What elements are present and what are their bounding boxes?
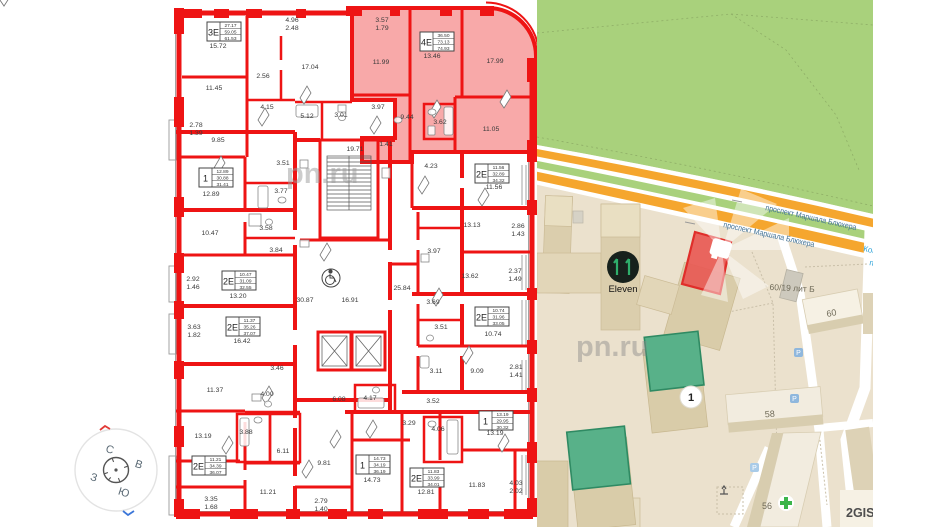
- svg-text:13.19: 13.19: [486, 430, 503, 437]
- svg-text:pn.ru: pn.ru: [576, 331, 649, 363]
- svg-text:С: С: [104, 443, 115, 457]
- svg-text:3.84: 3.84: [269, 247, 282, 254]
- svg-text:11.56: 11.56: [493, 165, 505, 171]
- svg-text:11.37: 11.37: [244, 318, 256, 324]
- svg-text:73.13: 73.13: [437, 40, 449, 46]
- svg-text:2Е: 2Е: [193, 462, 204, 472]
- svg-text:3.63: 3.63: [187, 324, 200, 331]
- svg-text:P: P: [796, 350, 801, 357]
- svg-text:11.83: 11.83: [469, 482, 486, 489]
- svg-text:30.88: 30.88: [216, 176, 228, 182]
- svg-text:2Е: 2Е: [223, 277, 234, 287]
- svg-text:1.43: 1.43: [511, 231, 524, 238]
- svg-text:3.97: 3.97: [371, 104, 384, 111]
- svg-text:1: 1: [360, 461, 365, 471]
- svg-text:11.05: 11.05: [483, 126, 500, 133]
- svg-text:4.17: 4.17: [363, 395, 376, 402]
- svg-text:2.86: 2.86: [511, 223, 524, 230]
- svg-text:19.71: 19.71: [346, 146, 363, 153]
- svg-text:1.40: 1.40: [314, 506, 327, 513]
- svg-text:15.72: 15.72: [209, 43, 226, 50]
- svg-text:6.08: 6.08: [332, 396, 345, 403]
- svg-text:В: В: [133, 458, 144, 472]
- svg-text:13.13: 13.13: [463, 222, 480, 229]
- svg-text:3.88: 3.88: [239, 429, 252, 436]
- svg-text:11.37: 11.37: [207, 387, 224, 394]
- svg-text:59.05: 59.05: [224, 30, 236, 36]
- svg-text:16.42: 16.42: [233, 338, 250, 345]
- svg-text:17.04: 17.04: [301, 64, 318, 71]
- svg-text:13.62: 13.62: [461, 273, 478, 280]
- svg-text:2Е: 2Е: [227, 323, 238, 333]
- svg-text:3.52: 3.52: [426, 398, 439, 405]
- svg-text:12.81: 12.81: [417, 489, 434, 496]
- svg-text:34.19: 34.19: [373, 463, 385, 469]
- svg-text:11.21: 11.21: [260, 489, 277, 496]
- svg-text:P: P: [752, 465, 757, 472]
- svg-text:3.62: 3.62: [433, 119, 446, 126]
- svg-text:2Е: 2Е: [411, 474, 422, 484]
- svg-text:1.41: 1.41: [509, 372, 522, 379]
- svg-text:10.47: 10.47: [239, 272, 251, 278]
- svg-text:27.17: 27.17: [224, 23, 236, 29]
- svg-text:3.29: 3.29: [402, 420, 415, 427]
- svg-text:2.78: 2.78: [189, 122, 202, 129]
- svg-text:1.39: 1.39: [189, 130, 202, 137]
- svg-text:30.32: 30.32: [496, 425, 508, 431]
- svg-text:3.51: 3.51: [434, 324, 447, 331]
- svg-text:1: 1: [203, 174, 208, 184]
- svg-text:2Е: 2Е: [476, 313, 487, 323]
- svg-text:4.15: 4.15: [260, 104, 273, 111]
- svg-text:3.57: 3.57: [375, 17, 388, 24]
- svg-text:6.11: 6.11: [277, 448, 290, 455]
- svg-text:35.26: 35.26: [243, 325, 255, 331]
- svg-text:34.32: 34.32: [492, 178, 504, 184]
- svg-text:3.35: 3.35: [204, 496, 217, 503]
- svg-text:17.99: 17.99: [486, 58, 503, 65]
- svg-text:P: P: [792, 396, 797, 403]
- svg-text:56: 56: [762, 501, 772, 511]
- svg-text:13.20: 13.20: [229, 293, 246, 300]
- svg-text:61.53: 61.53: [224, 36, 236, 42]
- svg-text:9.44: 9.44: [400, 114, 413, 121]
- svg-text:16.91: 16.91: [341, 297, 358, 304]
- svg-text:2.02: 2.02: [509, 488, 522, 495]
- svg-text:10.74: 10.74: [492, 308, 504, 314]
- svg-text:5.12: 5.12: [300, 113, 313, 120]
- svg-text:3.11: 3.11: [430, 368, 443, 375]
- svg-text:2GIS: 2GIS: [846, 506, 873, 520]
- svg-text:9.09: 9.09: [470, 368, 483, 375]
- svg-text:2.56: 2.56: [256, 73, 269, 80]
- svg-text:3.97: 3.97: [427, 248, 440, 255]
- svg-text:25.84: 25.84: [393, 285, 410, 292]
- svg-text:10.47: 10.47: [201, 230, 218, 237]
- svg-text:13.19: 13.19: [194, 433, 211, 440]
- svg-text:4.96: 4.96: [285, 17, 298, 24]
- svg-text:3.77: 3.77: [274, 188, 287, 195]
- svg-text:34.01: 34.01: [427, 482, 439, 488]
- svg-text:4.06: 4.06: [431, 426, 444, 433]
- svg-text:36.50: 36.50: [437, 33, 449, 39]
- svg-text:60: 60: [826, 307, 838, 319]
- svg-text:1.49: 1.49: [508, 276, 521, 283]
- svg-text:2.79: 2.79: [314, 498, 327, 505]
- svg-text:1.41: 1.41: [379, 141, 392, 148]
- svg-text:34.39: 34.39: [209, 464, 221, 470]
- svg-text:31.09: 31.09: [239, 279, 251, 285]
- svg-text:9.85: 9.85: [211, 137, 224, 144]
- svg-text:29.95: 29.95: [496, 419, 508, 425]
- svg-text:2.92: 2.92: [186, 276, 199, 283]
- svg-text:37.07: 37.07: [243, 331, 255, 337]
- svg-text:58: 58: [764, 409, 775, 420]
- svg-text:1.82: 1.82: [187, 332, 200, 339]
- svg-text:pn.ru: pn.ru: [286, 158, 359, 190]
- svg-text:Ю: Ю: [117, 486, 131, 501]
- svg-text:1: 1: [688, 392, 694, 404]
- svg-text:9.81: 9.81: [317, 460, 330, 467]
- svg-text:1.68: 1.68: [204, 504, 217, 511]
- svg-text:13.46: 13.46: [423, 53, 440, 60]
- svg-text:11.83: 11.83: [428, 469, 440, 475]
- svg-text:3.51: 3.51: [276, 160, 289, 167]
- svg-text:36.07: 36.07: [209, 470, 221, 476]
- svg-text:33.99: 33.99: [427, 476, 439, 482]
- svg-text:3.58: 3.58: [259, 225, 272, 232]
- svg-text:13.19: 13.19: [496, 412, 508, 418]
- svg-text:33.05: 33.05: [492, 321, 504, 327]
- svg-text:2Е: 2Е: [476, 170, 487, 180]
- svg-text:4.03: 4.03: [509, 480, 522, 487]
- svg-text:14.73: 14.73: [363, 477, 380, 484]
- svg-text:11.21: 11.21: [210, 457, 222, 463]
- svg-text:3.69: 3.69: [426, 299, 439, 306]
- svg-text:10.74: 10.74: [484, 331, 501, 338]
- svg-text:12.89: 12.89: [202, 191, 219, 198]
- svg-text:2.81: 2.81: [509, 364, 522, 371]
- svg-text:32.89: 32.89: [492, 172, 504, 178]
- svg-text:2.37: 2.37: [508, 268, 521, 275]
- svg-text:11.56: 11.56: [486, 184, 503, 191]
- svg-text:11.45: 11.45: [206, 85, 223, 92]
- svg-text:4Е: 4Е: [421, 38, 432, 48]
- svg-text:32.55: 32.55: [239, 285, 251, 291]
- svg-text:1.79: 1.79: [375, 25, 388, 32]
- svg-text:4.23: 4.23: [424, 163, 437, 170]
- svg-text:11.99: 11.99: [373, 59, 390, 66]
- svg-text:36.19: 36.19: [373, 469, 385, 475]
- svg-text:31.41: 31.41: [216, 182, 228, 188]
- svg-text:3.46: 3.46: [270, 365, 283, 372]
- svg-text:1: 1: [483, 417, 488, 427]
- svg-text:2.48: 2.48: [285, 25, 298, 32]
- svg-text:3.01: 3.01: [334, 112, 347, 119]
- svg-text:30.87: 30.87: [296, 297, 313, 304]
- svg-text:14.73: 14.73: [373, 456, 385, 462]
- svg-text:1.46: 1.46: [186, 284, 199, 291]
- svg-text:3Е: 3Е: [208, 28, 219, 38]
- svg-text:74.93: 74.93: [437, 46, 449, 52]
- svg-text:12.89: 12.89: [216, 169, 228, 175]
- svg-text:З: З: [89, 471, 99, 485]
- svg-text:Eleven: Eleven: [608, 284, 637, 295]
- svg-text:31.96: 31.96: [492, 315, 504, 321]
- svg-text:4.00: 4.00: [260, 391, 273, 398]
